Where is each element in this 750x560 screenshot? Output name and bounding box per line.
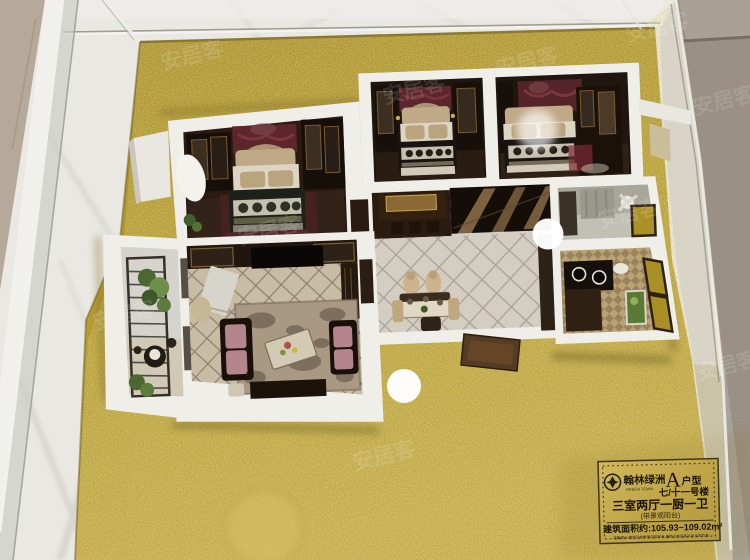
- svg-text:翰林绿洲: 翰林绿洲: [623, 473, 665, 487]
- svg-text:GREEN TOWN: GREEN TOWN: [626, 486, 654, 492]
- svg-text:户型: 户型: [680, 474, 701, 488]
- svg-text:三室两厅一厨一卫: 三室两厅一厨一卫: [612, 496, 708, 514]
